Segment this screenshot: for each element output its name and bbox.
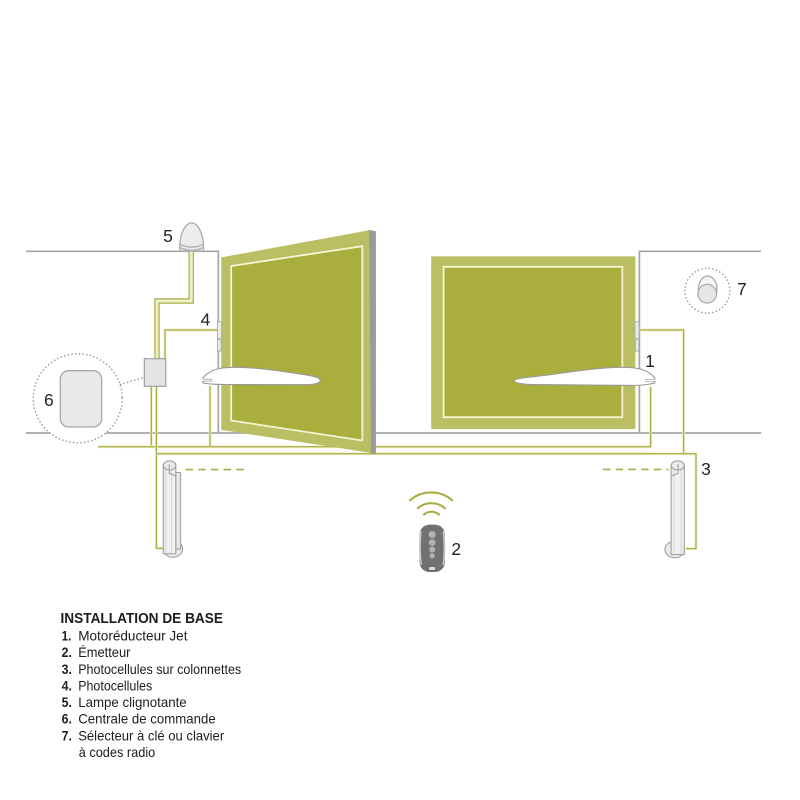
svg-text:INSTALLATION DE BASE: INSTALLATION DE BASE <box>61 610 224 627</box>
svg-text:3: 3 <box>701 459 711 479</box>
svg-text:Sélecteur à clé ou clavier: Sélecteur à clé ou clavier <box>78 727 224 743</box>
svg-text:6: 6 <box>44 390 54 410</box>
svg-text:2.: 2. <box>62 644 72 660</box>
svg-text:3.: 3. <box>62 661 72 677</box>
svg-text:7.: 7. <box>62 727 72 743</box>
svg-text:Lampe clignotante: Lampe clignotante <box>78 694 187 710</box>
svg-text:Émetteur: Émetteur <box>78 644 130 660</box>
svg-text:2: 2 <box>451 539 461 559</box>
svg-text:5: 5 <box>163 226 173 246</box>
svg-text:6.: 6. <box>62 711 72 727</box>
svg-text:Motoréducteur Jet: Motoréducteur Jet <box>78 628 187 644</box>
svg-text:Photocellules sur colonnettes: Photocellules sur colonnettes <box>78 661 241 677</box>
svg-text:1: 1 <box>645 351 655 371</box>
svg-text:4: 4 <box>201 310 211 330</box>
svg-text:Centrale de commande: Centrale de commande <box>78 711 216 727</box>
svg-text:7: 7 <box>737 279 747 299</box>
svg-text:1.: 1. <box>62 628 72 644</box>
svg-text:5.: 5. <box>62 694 72 710</box>
svg-text:à codes radio: à codes radio <box>79 744 156 760</box>
svg-text:Photocellules: Photocellules <box>78 677 152 693</box>
svg-text:4.: 4. <box>62 677 72 693</box>
